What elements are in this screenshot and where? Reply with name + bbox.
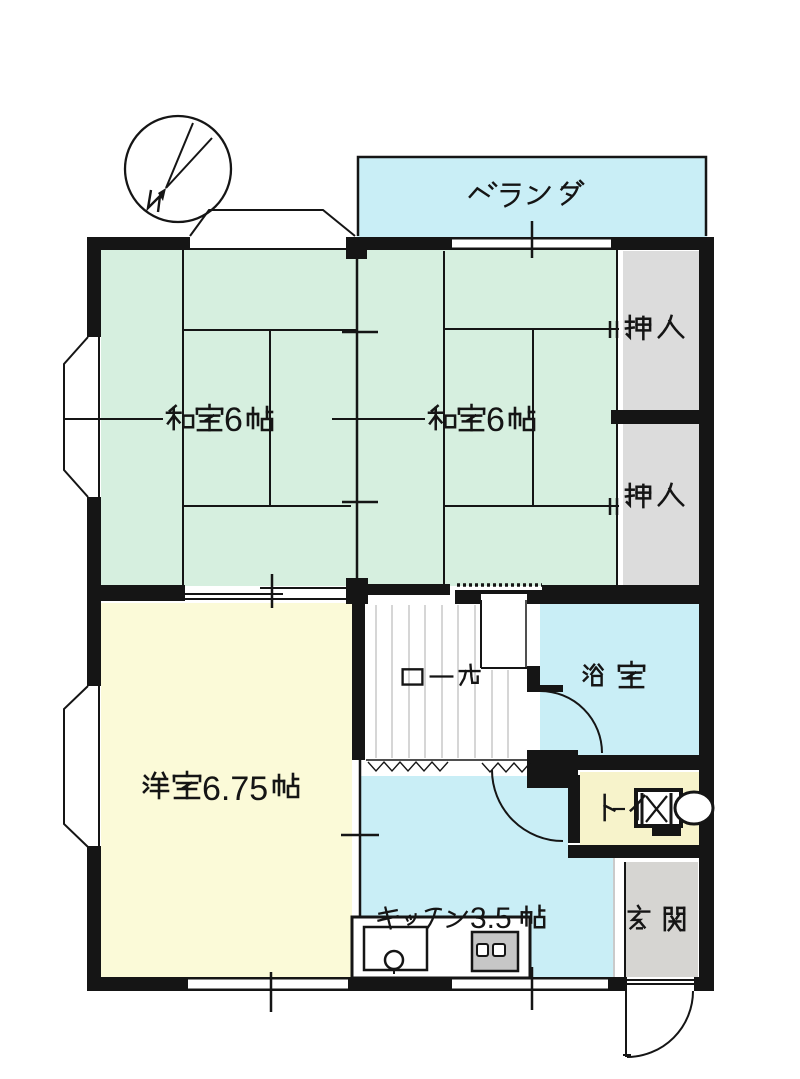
- svg-text:6: 6: [224, 401, 243, 439]
- svg-text:6.75: 6.75: [202, 770, 268, 808]
- svg-text:6: 6: [486, 401, 505, 439]
- svg-text:3.5: 3.5: [470, 902, 512, 935]
